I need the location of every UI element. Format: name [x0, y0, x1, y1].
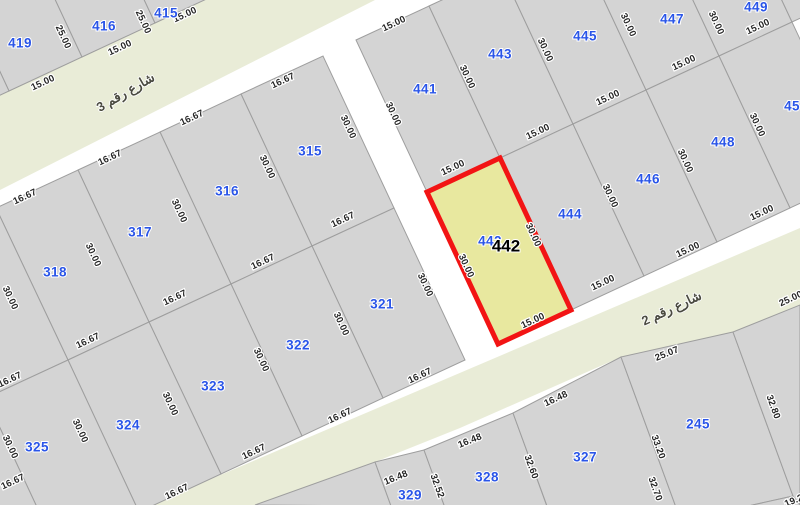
parcel-number-328: 328: [475, 470, 499, 485]
parcel-number-445: 445: [573, 29, 597, 44]
parcel-number-415: 415: [154, 6, 178, 21]
map-canvas: 25.0025.0015.0015.0015.0016.6716.6716.67…: [0, 0, 800, 505]
selected-parcel-number: 442: [492, 236, 520, 255]
parcel-number-449: 449: [744, 0, 768, 15]
parcel-number-316: 316: [215, 184, 239, 199]
parcel-number-245: 245: [686, 417, 710, 432]
parcel-number-329: 329: [398, 488, 422, 503]
parcel-number-321: 321: [370, 297, 394, 312]
parcel-number-416: 416: [92, 19, 116, 34]
parcel-number-324: 324: [116, 418, 140, 433]
parcel-number-327: 327: [573, 450, 597, 465]
parcel-number-446: 446: [636, 172, 660, 187]
parcel-number-317: 317: [128, 225, 152, 240]
parcel-number-45: 45: [784, 99, 800, 114]
parcel-number-322: 322: [286, 338, 310, 353]
cadastral-map: 25.0025.0015.0015.0015.0016.6716.6716.67…: [0, 0, 800, 505]
parcel-number-325: 325: [25, 440, 49, 455]
parcel-number-441: 441: [413, 82, 437, 97]
parcel-number-443: 443: [488, 47, 512, 62]
parcel-number-315: 315: [298, 144, 322, 159]
parcel-number-447: 447: [660, 12, 684, 27]
parcel-number-419: 419: [8, 36, 32, 51]
parcel-number-318: 318: [43, 265, 67, 280]
parcel-number-323: 323: [201, 379, 225, 394]
parcel-number-448: 448: [711, 135, 735, 150]
parcel-number-444: 444: [558, 207, 582, 222]
